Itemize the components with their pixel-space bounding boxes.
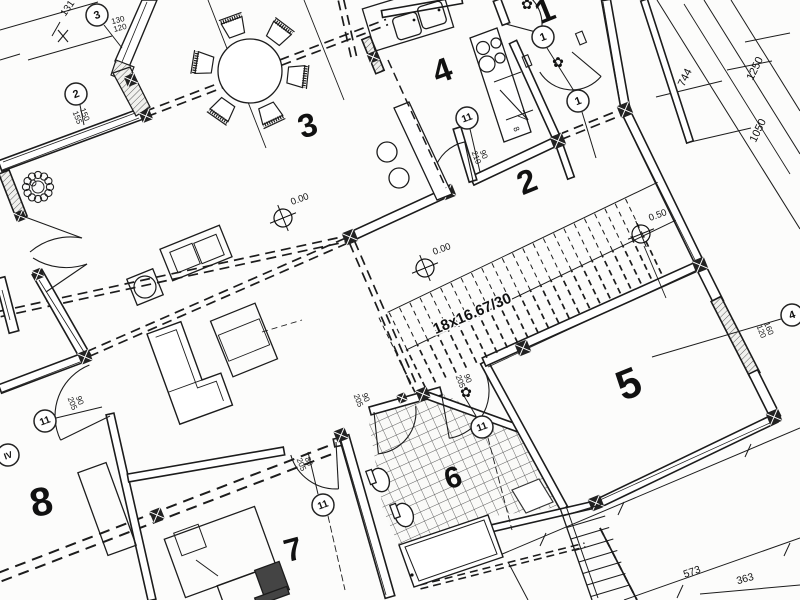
svg-text:✿: ✿ [521, 0, 533, 12]
svg-text:✿: ✿ [552, 54, 564, 70]
